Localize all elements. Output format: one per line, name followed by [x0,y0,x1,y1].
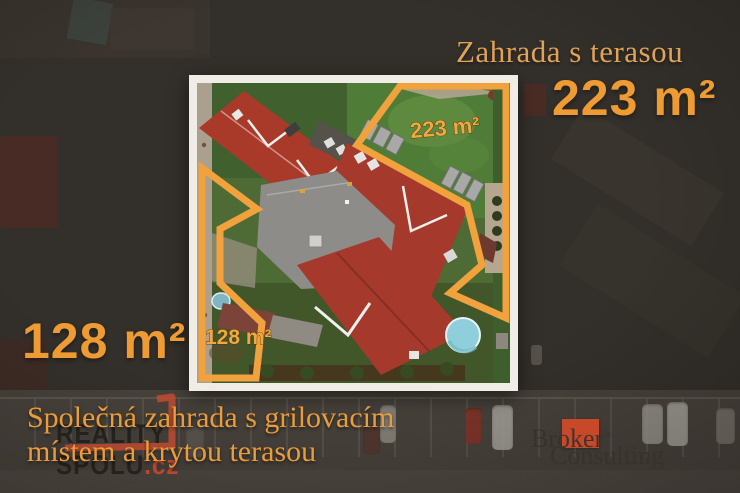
pool [446,318,480,352]
garden-area-value: 223 m² [552,73,716,123]
aerial-photo: 223 m² 128 m² [197,83,510,383]
caption-line1: Společná zahrada s grilovacím [27,401,394,435]
aerial-photo-scene: 223 m² 128 m² [197,83,510,383]
parked-car [492,405,513,450]
bg-dirt-patch2 [110,8,195,50]
photo-frame: 223 m² 128 m² [189,75,518,391]
headline-title: Zahrada s terasou [456,34,683,70]
caption-line2: místem a krytou terasou [27,435,394,469]
broker-logo-line2: Consulting [550,443,664,469]
parked-car [716,408,735,444]
registered-mark: ® [603,429,611,441]
parked-car [465,408,482,444]
bg-right-roof [551,106,724,246]
bg-right-roof2 [559,204,740,358]
bg-right-car [531,345,542,365]
caption-text: Společná zahrada s grilovacím místem a k… [27,401,394,469]
shared-garden-area-value: 128 m² [22,316,186,366]
listing-graphic: 223 m² 128 m² Zahrada s terasou 223 m² 1… [0,0,740,493]
bg-right-roof-red [524,84,546,116]
broker-consulting-logo: Broker® Consulting [531,414,701,476]
bg-left-roof [0,136,58,228]
garden-area-label-left: 128 m² [205,326,272,349]
